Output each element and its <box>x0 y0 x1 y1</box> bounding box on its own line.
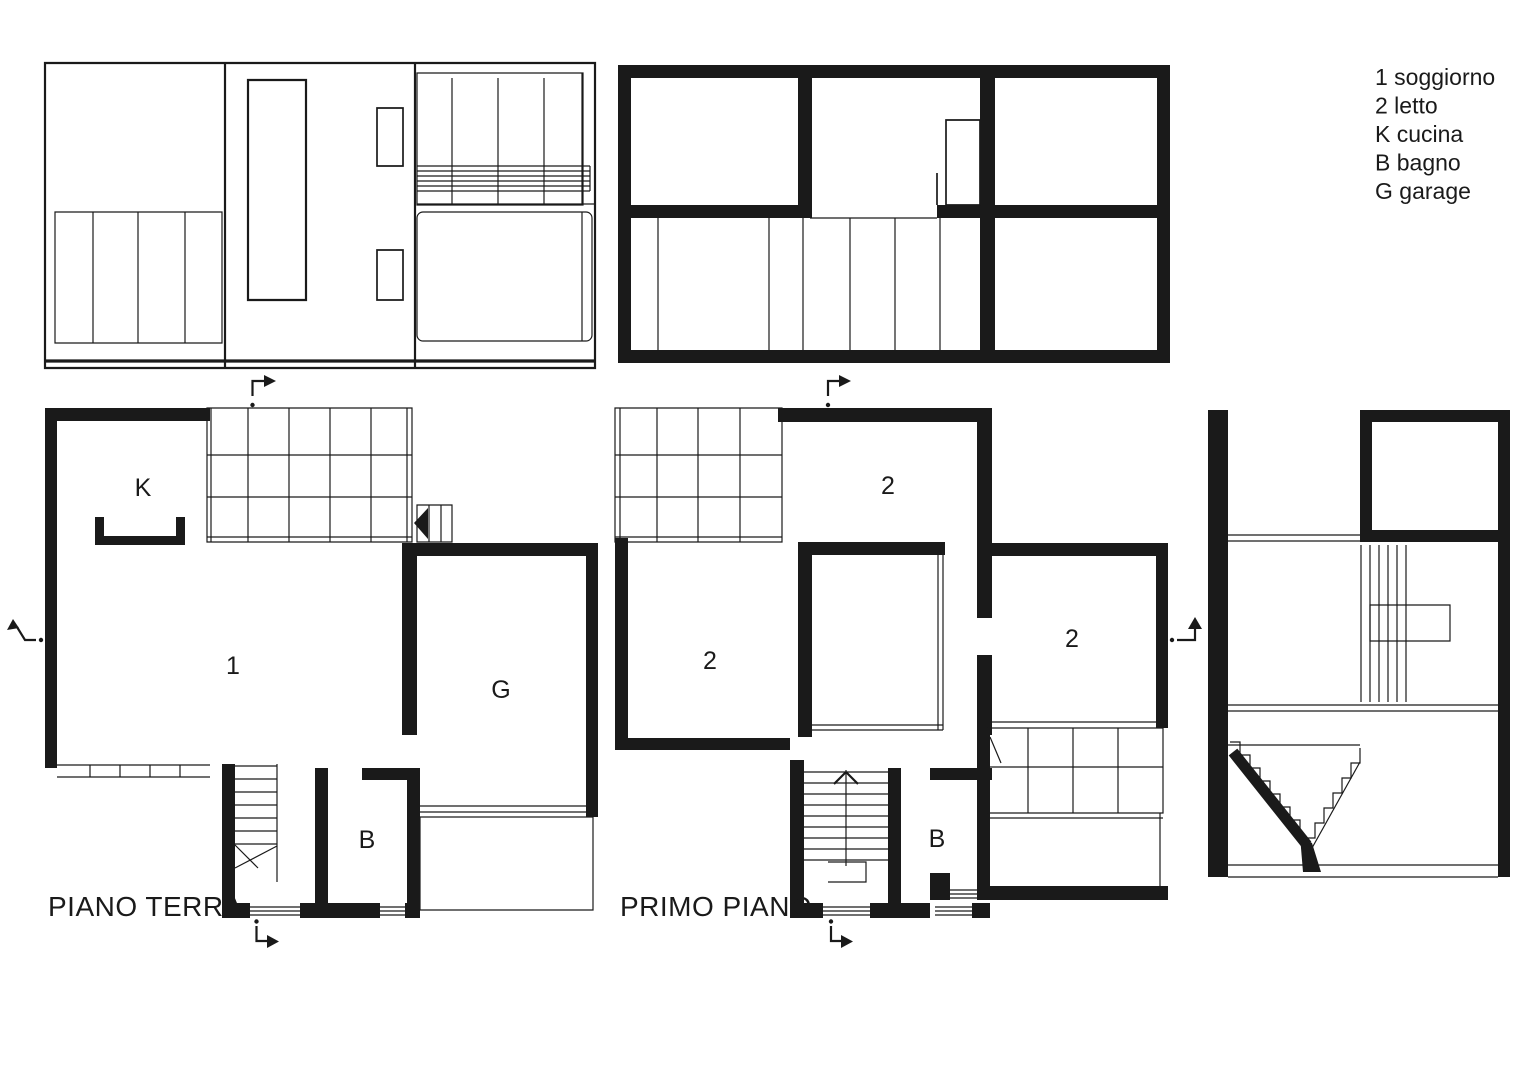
roof-plan-outline <box>45 63 595 368</box>
pt-terrace-grid <box>207 408 412 542</box>
section-door-leaf <box>937 120 980 205</box>
legend-item-letto: 2 letto <box>1375 93 1438 119</box>
pp-label-bedroom-right: 2 <box>1065 625 1079 653</box>
roof-skylight-grid <box>55 212 222 343</box>
pp-bath-window-stripes <box>935 907 972 915</box>
sb-stair-flight-solid <box>1233 752 1307 845</box>
pt-driveway-apron <box>420 817 593 910</box>
building-section-side <box>1208 410 1510 877</box>
pt-label-garage: G <box>491 676 510 704</box>
pt-label-kitchen: K <box>135 474 152 502</box>
legend-item-cucina: K cucina <box>1375 121 1463 147</box>
sb-first-floor-line <box>1228 535 1360 541</box>
sb-stair-steps-right <box>1306 748 1360 838</box>
legend-item-garage: G garage <box>1375 178 1471 204</box>
pp-door-swing <box>990 737 1001 763</box>
pt-section-mark-top <box>250 375 276 407</box>
pt-garage-door <box>418 806 590 812</box>
pt-walls <box>45 408 598 918</box>
legend: 1 soggiorno 2 letto K cucina B bagno G g… <box>1375 64 1495 204</box>
pp-section-mark-top <box>826 375 851 407</box>
sb-ground-lines <box>1228 865 1498 877</box>
roof-plan <box>45 63 595 368</box>
section-lower-partitions <box>658 218 940 350</box>
pp-title: PRIMO PIANO <box>620 891 812 922</box>
roof-louver-band <box>417 166 590 191</box>
pp-section-mark-right <box>1170 617 1202 642</box>
roof-pergola-panel <box>417 73 583 205</box>
sb-stair-railing <box>1361 545 1406 702</box>
pt-label-living: 1 <box>226 652 240 680</box>
pp-terrace-grid-topleft <box>615 408 782 542</box>
pp-label-bedroom-left: 2 <box>703 647 717 675</box>
roof-vent-bottom <box>377 250 403 300</box>
section-walls <box>618 65 1170 363</box>
pt-label-bathroom: B <box>359 826 376 854</box>
pt-entry-door-stripes <box>250 907 300 915</box>
pt-section-mark-left <box>7 619 43 642</box>
pp-label-bedroom-top: 2 <box>881 472 895 500</box>
pt-kitchen-counter <box>95 517 185 545</box>
pp-terrace-grid-bottomright <box>988 722 1163 886</box>
architectural-drawing: 1 soggiorno 2 letto K cucina B bagno G g… <box>0 0 1527 1080</box>
building-section-top <box>618 65 1170 363</box>
roof-chimney <box>248 80 306 300</box>
pt-bath-window-stripes <box>380 907 405 915</box>
pp-label-bathroom: B <box>929 825 946 853</box>
legend-item-bagno: B bagno <box>1375 150 1461 176</box>
plan-piano-terra: K 1 G B PIANO TERRA <box>7 375 598 948</box>
sb-landing-lines <box>1228 705 1498 745</box>
sb-stair-soffit <box>1312 762 1360 848</box>
pt-window-band <box>57 765 210 777</box>
legend-item-soggiorno: 1 soggiorno <box>1375 64 1495 90</box>
pp-section-mark-bottom <box>829 919 853 948</box>
pp-void-over-living <box>812 555 943 730</box>
pp-entry-door-stripes <box>823 907 870 915</box>
roof-terrace-slab <box>417 212 592 341</box>
roof-vent-top <box>377 108 403 166</box>
pp-stair-treads <box>804 770 888 882</box>
drawing-sheet: 1 soggiorno 2 letto K cucina B bagno G g… <box>0 0 1527 1080</box>
sb-walls <box>1208 410 1510 877</box>
pt-entry-steps-arrow <box>414 508 428 539</box>
pp-terrace-door-stripes <box>950 890 977 898</box>
pt-title: PIANO TERRA <box>48 891 243 922</box>
plan-primo-piano: 2 2 2 B PRIMO PIANO <box>615 375 1202 948</box>
sb-table <box>1370 605 1450 641</box>
pt-section-mark-bottom <box>254 919 279 948</box>
pt-stair-treads <box>235 764 277 882</box>
